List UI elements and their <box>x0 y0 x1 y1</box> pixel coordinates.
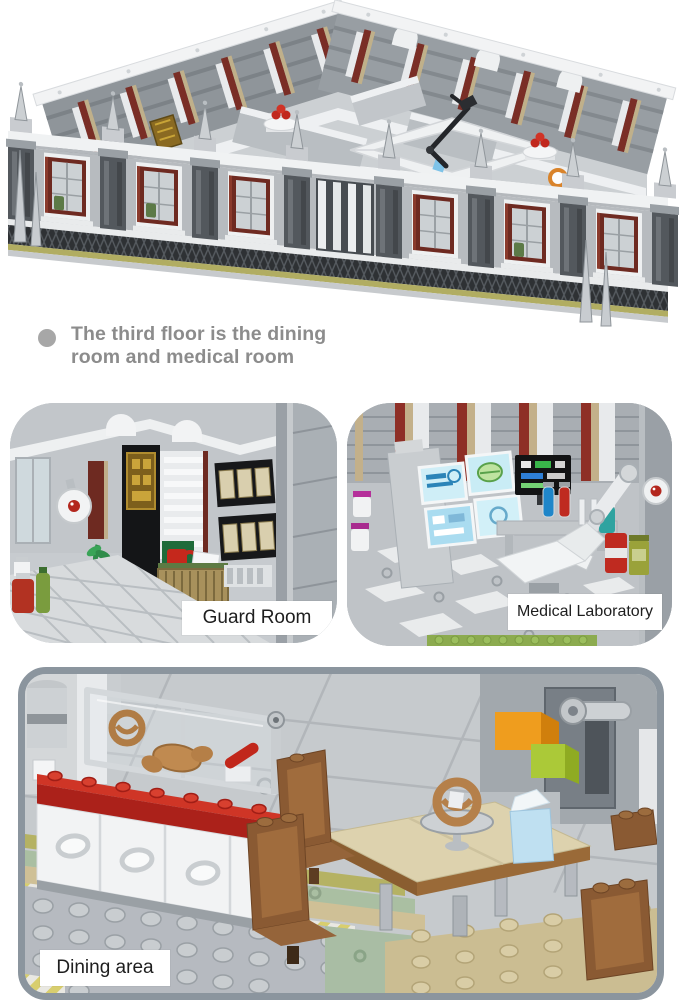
product-page: The third floor is the dining room and m… <box>0 0 679 1005</box>
guard-room-label: Guard Room <box>182 601 332 635</box>
medical-laboratory-label: Medical Laboratory <box>508 594 662 630</box>
medical-laboratory-panel: Medical Laboratory <box>347 403 672 646</box>
caption: The third floor is the dining room and m… <box>38 323 358 369</box>
wall-lamp <box>643 478 669 504</box>
dining-area-panel: Dining area <box>18 667 664 1000</box>
caption-text: The third floor is the dining room and m… <box>71 323 358 369</box>
caption-bullet <box>38 329 56 347</box>
dining-area-label: Dining area <box>40 950 170 986</box>
guard-room-panel: Guard Room <box>10 403 337 643</box>
canisters <box>605 533 649 575</box>
hero-building-photo <box>0 0 679 334</box>
green-base-strip <box>427 635 597 646</box>
